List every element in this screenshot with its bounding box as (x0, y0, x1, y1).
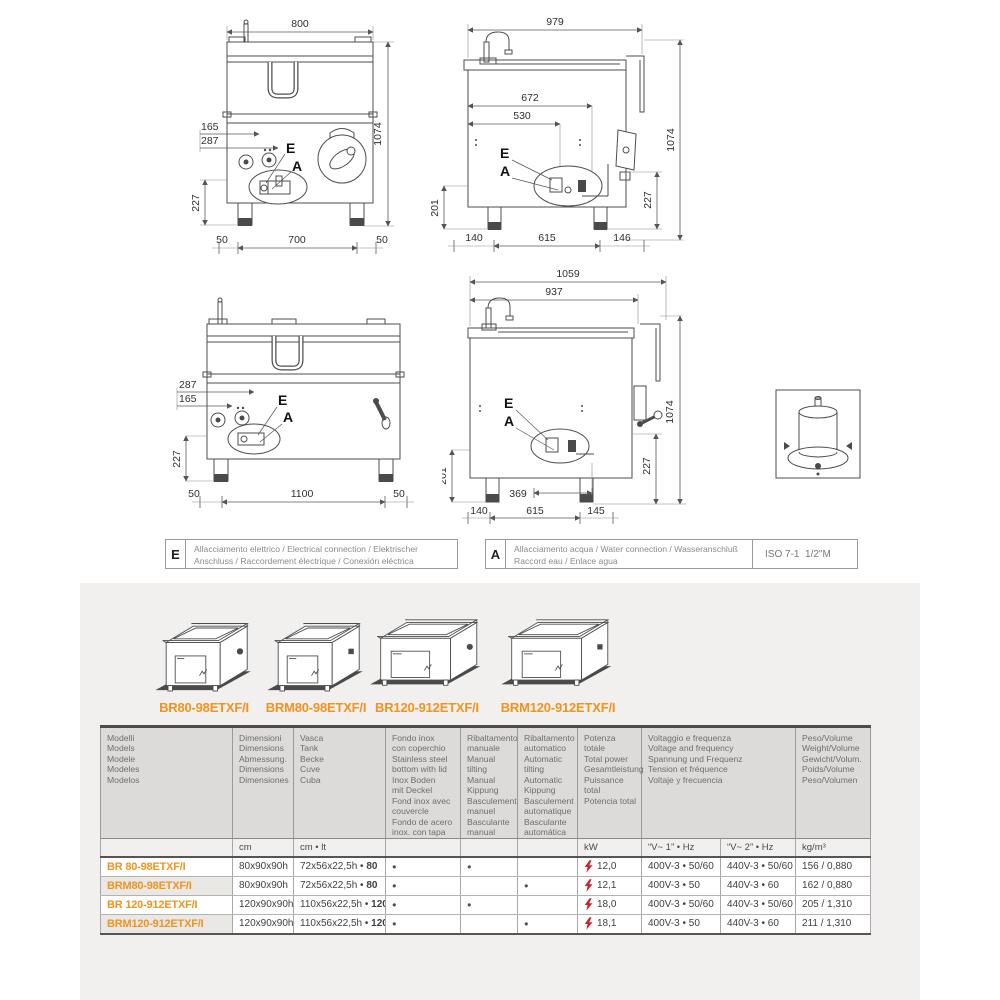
dim-label: 146 (613, 232, 631, 244)
voltage2-cell: 440V-3 • 60 (721, 876, 796, 895)
tank-size: 110x56x22,5h • (300, 918, 368, 929)
power-cell: 18,0 (578, 895, 642, 914)
point-a-label: A (504, 413, 514, 429)
dimensions-cell: 120x90x90h (233, 895, 294, 914)
voltage2-cell: 440V-3 • 50/60 (721, 895, 796, 914)
tank-capacity: 120 (371, 899, 385, 910)
legend-electrical-text: Allacciamento elettrico / Electrical con… (185, 539, 458, 569)
power-value: 12,0 (597, 861, 616, 872)
dim-label: 201 (442, 467, 449, 485)
automatic-tilting-dot: ● (518, 876, 578, 895)
dim-label: 615 (538, 232, 556, 244)
power-cell: 12,1 (578, 876, 642, 895)
model-name: BR 80-98ETXF/I (101, 857, 233, 877)
dim-label: 1100 (291, 488, 314, 500)
dimensions-cell: 120x90x90h (233, 914, 294, 934)
product-name-br80: BR80-98ETXF/I (150, 700, 258, 715)
header-tank: Vasca Tank Becke Cuve Cuba (294, 727, 386, 839)
dim-label: 369 (509, 488, 527, 500)
point-e-label: E (286, 140, 295, 156)
spec-table: Modelli Models Modele Modeles Modelos Di… (100, 725, 871, 935)
point-a-label: A (500, 163, 510, 179)
model-name: BR 120-912ETXF/I (101, 895, 233, 914)
voltage1-cell: 400V-3 • 50 (642, 876, 721, 895)
dim-label: 1074 (665, 128, 677, 152)
power-bolt-icon (584, 917, 593, 930)
model-name: BRM80-98ETXF/I (101, 876, 233, 895)
dim-label: 165 (179, 393, 197, 405)
point-a-label: A (292, 158, 302, 174)
voltage1-cell: 400V-3 • 50/60 (642, 857, 721, 877)
dim-label: 700 (288, 234, 306, 246)
legend-water-text: Allacciamento acqua / Water connection /… (505, 539, 753, 569)
manual-tilting-dot: ● (461, 857, 518, 877)
product-name-brm80: BRM80-98ETXF/I (262, 700, 370, 715)
point-e-label: E (500, 145, 509, 161)
product-name-brm120: BRM120-912ETXF/I (496, 700, 620, 715)
product-image-brm120 (496, 597, 620, 695)
header-manual-tilting: Ribaltamento manuale Manual tilting Manu… (461, 727, 518, 839)
lid-dot: ● (386, 914, 461, 934)
voltage1-cell: 400V-3 • 50 (642, 914, 721, 934)
legend-water-spec: ISO 7-1 1/2"M (752, 539, 858, 569)
product-image-br80 (150, 600, 258, 701)
product-image-brm80 (262, 600, 370, 701)
drawing-motor-detail (772, 386, 864, 482)
automatic-tilting-dot (518, 895, 578, 914)
dim-label: 615 (526, 505, 544, 517)
tank-capacity: 120 (371, 918, 385, 929)
drawing-front-view-1200: E A 287 165 227 50 1100 50 (152, 272, 452, 530)
dim-label: 201 (430, 199, 441, 217)
tank-size: 72x56x22,5h • (300, 880, 364, 891)
lid-dot: ● (386, 857, 461, 877)
tank-cell: 72x56x22,5h • 80 (294, 876, 386, 895)
voltage2-cell: 440V-3 • 60 (721, 914, 796, 934)
lid-dot: ● (386, 876, 461, 895)
unit-cell (518, 838, 578, 857)
power-bolt-icon (584, 860, 593, 873)
weight-cell: 156 / 0,880 (796, 857, 871, 877)
voltage2-cell: 440V-3 • 50/60 (721, 857, 796, 877)
header-total-power: Potenza totale Total power Gesamtleistun… (578, 727, 642, 839)
unit-cell: kg/m³ (796, 838, 871, 857)
dim-label: 530 (513, 110, 531, 122)
dim-label: 227 (642, 191, 654, 209)
dim-label: 50 (216, 234, 228, 246)
point-e-label: E (278, 392, 287, 408)
unit-cell: “V~ 1” • Hz (642, 838, 721, 857)
dim-label: 287 (201, 135, 219, 147)
power-value: 18,0 (597, 899, 616, 910)
product-name-br120: BR120-912ETXF/I (365, 700, 489, 715)
legend-water-symbol: A (485, 539, 506, 569)
manual-tilting-dot (461, 876, 518, 895)
dim-label: 800 (291, 18, 309, 30)
power-cell: 12,0 (578, 857, 642, 877)
header-lid: Fondo inox con coperchio Stainless steel… (386, 727, 461, 839)
dimensions-cell: 80x90x90h (233, 857, 294, 877)
tank-capacity: 80 (366, 861, 377, 872)
dim-label: 50 (188, 488, 200, 500)
legend-electrical-symbol: E (165, 539, 186, 569)
dim-label: 165 (201, 121, 219, 133)
power-value: 12,1 (597, 880, 616, 891)
drawing-side-view-979: 979 672 530 E A 201 227 (430, 12, 710, 262)
dim-label: 227 (171, 450, 183, 468)
dim-label: 979 (546, 16, 564, 28)
header-dimensions: Dimensioni Dimensions Abmessung. Dimensi… (233, 727, 294, 839)
automatic-tilting-dot (518, 857, 578, 877)
power-bolt-icon (584, 898, 593, 911)
lid-dot: ● (386, 895, 461, 914)
table-row: BRM80-98ETXF/I 80x90x90h 72x56x22,5h • 8… (101, 876, 871, 895)
unit-cell: cm • lt (294, 838, 386, 857)
model-name: BRM120-912ETXF/I (101, 914, 233, 934)
power-cell: 18,1 (578, 914, 642, 934)
unit-cell (101, 838, 233, 857)
drawing-side-view-1059: 1059 937 E A 201 227 1074 369 (442, 266, 722, 538)
dim-label: 1074 (664, 400, 676, 424)
header-row: Modelli Models Modele Modeles Modelos Di… (101, 727, 871, 839)
tank-capacity: 80 (366, 880, 377, 891)
manual-tilting-dot (461, 914, 518, 934)
tank-size: 110x56x22,5h • (300, 899, 368, 910)
table-row: BRM120-912ETXF/I 120x90x90h 110x56x22,5h… (101, 914, 871, 934)
tank-size: 72x56x22,5h • (300, 861, 364, 872)
dim-label: 672 (521, 92, 539, 104)
table-row: BR 120-912ETXF/I 120x90x90h 110x56x22,5h… (101, 895, 871, 914)
tank-cell: 72x56x22,5h • 80 (294, 857, 386, 877)
dim-label: 937 (545, 286, 563, 298)
dim-label: 287 (179, 379, 197, 391)
dimensions-cell: 80x90x90h (233, 876, 294, 895)
table-row: BR 80-98ETXF/I 80x90x90h 72x56x22,5h • 8… (101, 857, 871, 877)
dim-label: 50 (393, 488, 405, 500)
unit-cell (461, 838, 518, 857)
power-bolt-icon (584, 879, 593, 892)
dim-label: 50 (376, 234, 388, 246)
power-value: 18,1 (597, 918, 616, 929)
unit-cell: “V~ 2” • Hz (721, 838, 796, 857)
dim-label: 227 (641, 457, 653, 475)
automatic-tilting-dot: ● (518, 914, 578, 934)
header-voltage: Voltaggio e frequenza Voltage and freque… (642, 727, 796, 839)
drawing-front-view-800: 800 E A 165 287 227 (172, 12, 422, 257)
point-a-label: A (283, 409, 293, 425)
spec-sheet-page: 800 E A 165 287 227 (0, 0, 1000, 1000)
dim-label: 145 (587, 505, 605, 517)
voltage1-cell: 400V-3 • 50/60 (642, 895, 721, 914)
dim-label: 1059 (556, 268, 580, 280)
tank-cell: 110x56x22,5h • 120 (294, 914, 386, 934)
units-row: cm cm • lt kW “V~ 1” • Hz “V~ 2” • Hz kg… (101, 838, 871, 857)
dim-label: 227 (190, 194, 202, 212)
weight-cell: 162 / 0,880 (796, 876, 871, 895)
product-image-br120 (365, 597, 489, 695)
dim-label: 140 (470, 505, 488, 517)
weight-cell: 205 / 1,310 (796, 895, 871, 914)
dim-label: 1074 (372, 122, 384, 146)
header-models: Modelli Models Modele Modeles Modelos (101, 727, 233, 839)
header-weight-volume: Peso/Volume Weight/Volume Gewicht/Volum.… (796, 727, 871, 839)
point-e-label: E (504, 395, 513, 411)
unit-cell: cm (233, 838, 294, 857)
manual-tilting-dot: ● (461, 895, 518, 914)
header-automatic-tilting: Ribaltamento automatico Automatic tiltin… (518, 727, 578, 839)
unit-cell: kW (578, 838, 642, 857)
weight-cell: 211 / 1,310 (796, 914, 871, 934)
tank-cell: 110x56x22,5h • 120 (294, 895, 386, 914)
dim-label: 140 (465, 232, 483, 244)
unit-cell (386, 838, 461, 857)
